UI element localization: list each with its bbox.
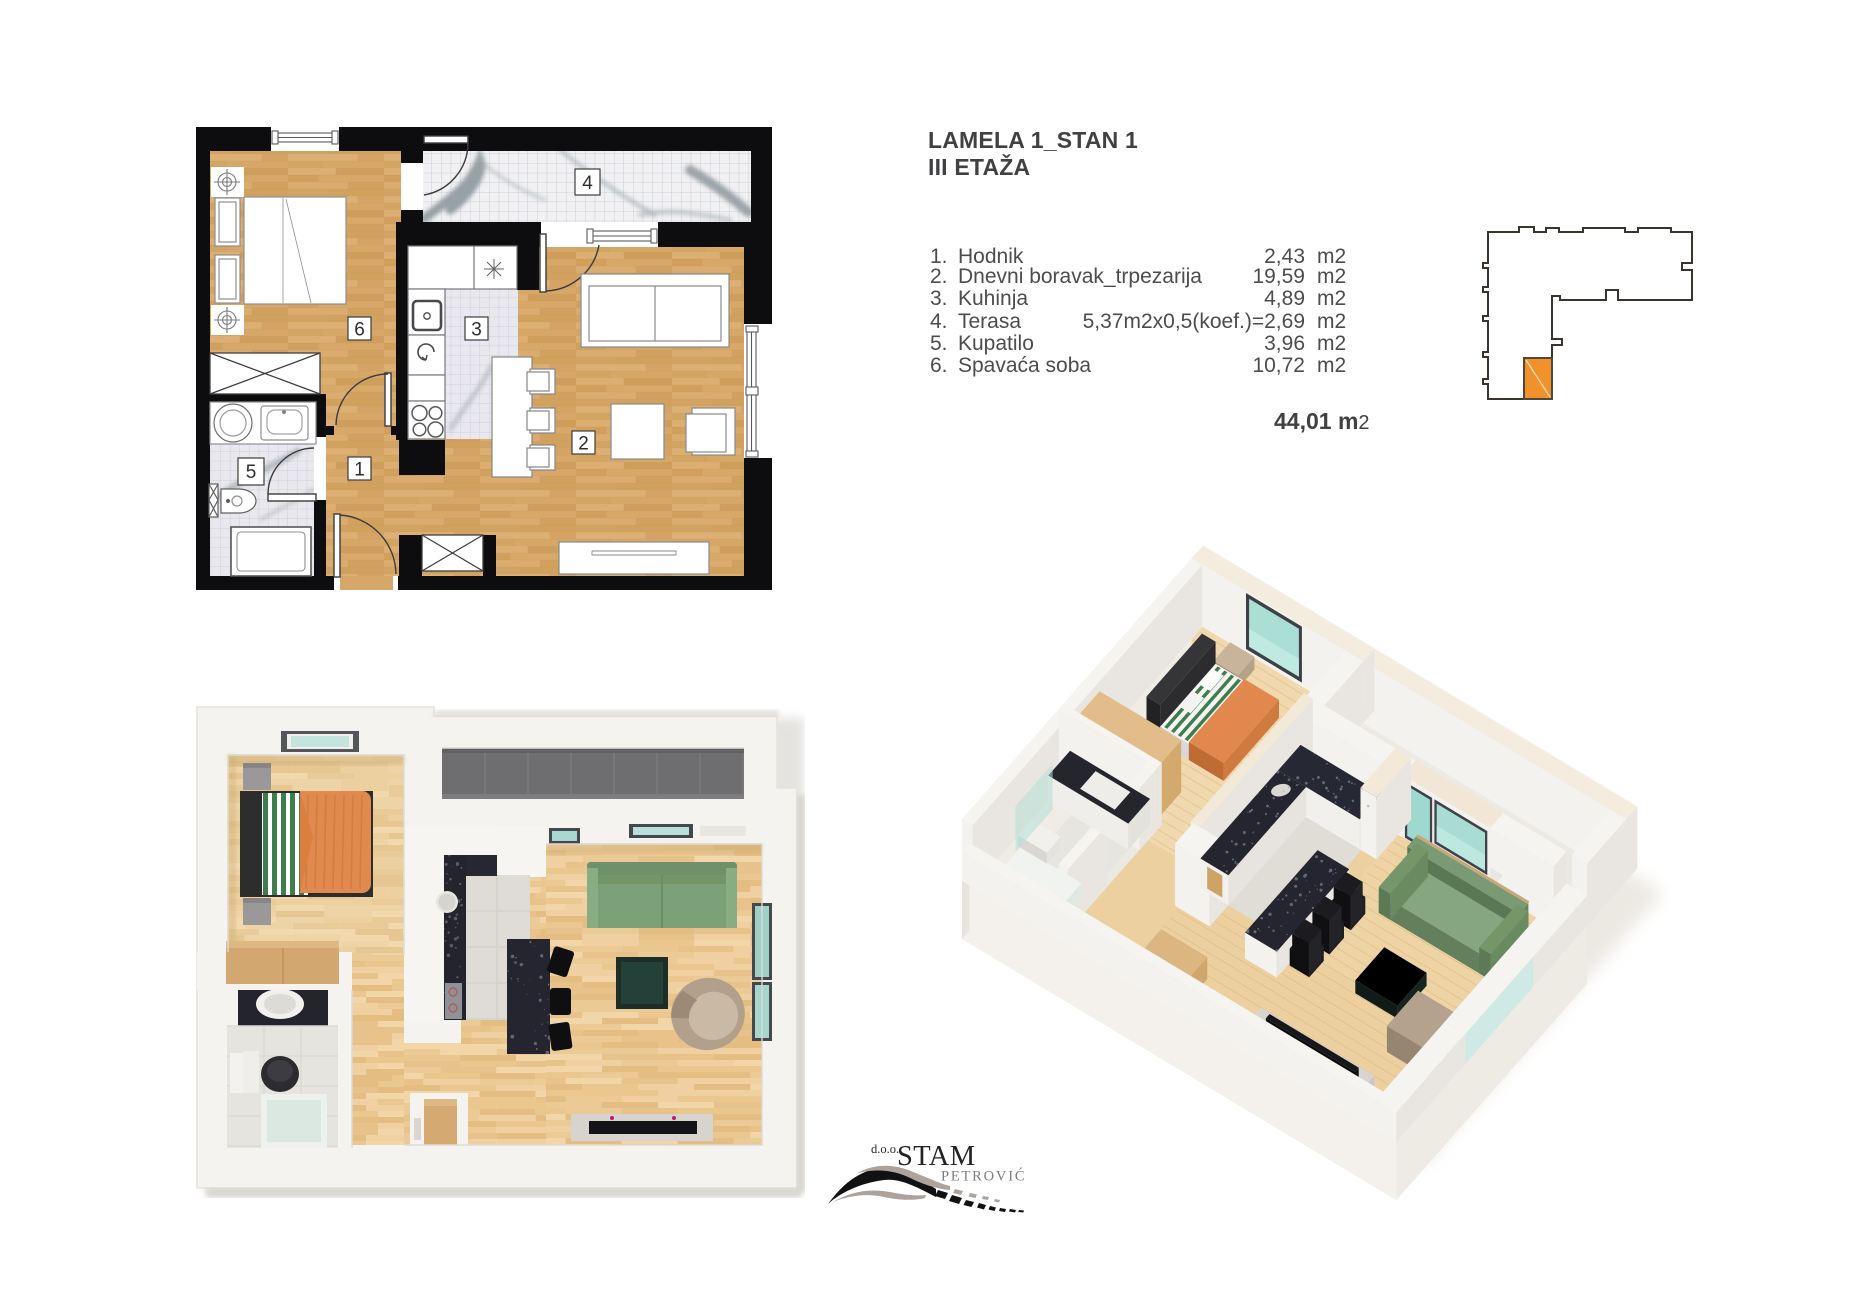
svg-text:5: 5 [246, 462, 257, 483]
svg-text:1: 1 [354, 460, 365, 481]
svg-text:6: 6 [354, 320, 365, 341]
svg-text:4: 4 [582, 173, 593, 194]
svg-text:d.o.o.: d.o.o. [871, 1142, 899, 1156]
svg-text:3: 3 [471, 320, 482, 341]
svg-text:STAM: STAM [897, 1141, 976, 1172]
svg-text:PETROVIĆ: PETROVIĆ [941, 1168, 1026, 1185]
svg-text:2: 2 [578, 434, 589, 455]
